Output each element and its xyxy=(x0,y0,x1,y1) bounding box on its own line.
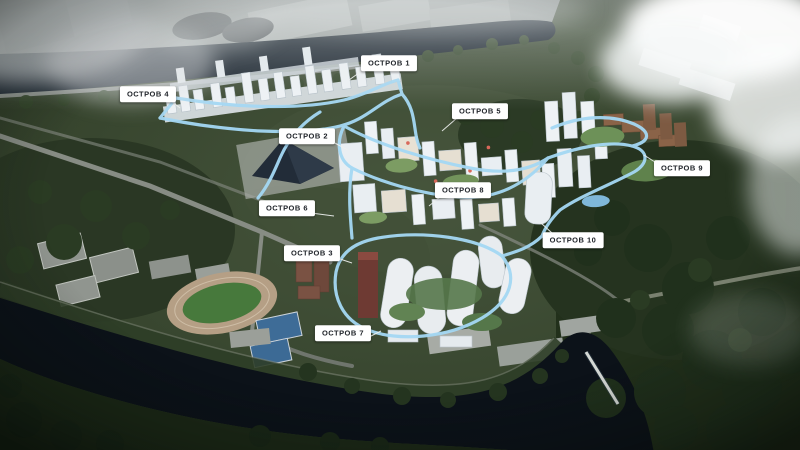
district-label-ostrov-10[interactable]: ОСТРОВ 10 xyxy=(543,232,604,248)
district-label-ostrov-9[interactable]: ОСТРОВ 9 xyxy=(654,160,710,176)
masterplan-scene: ОСТРОВ 1 ОСТРОВ 4 ОСТРОВ 2 ОСТРОВ 5 ОСТР… xyxy=(0,0,800,450)
district-label-ostrov-1[interactable]: ОСТРОВ 1 xyxy=(361,55,417,71)
district-label-ostrov-6[interactable]: ОСТРОВ 6 xyxy=(259,200,315,216)
district-label-ostrov-8[interactable]: ОСТРОВ 8 xyxy=(435,182,491,198)
district-label-ostrov-2[interactable]: ОСТРОВ 2 xyxy=(279,128,335,144)
district-label-ostrov-7[interactable]: ОСТРОВ 7 xyxy=(315,325,371,341)
district-label-ostrov-5[interactable]: ОСТРОВ 5 xyxy=(452,103,508,119)
district-labels: ОСТРОВ 1 ОСТРОВ 4 ОСТРОВ 2 ОСТРОВ 5 ОСТР… xyxy=(0,0,800,450)
district-label-ostrov-4[interactable]: ОСТРОВ 4 xyxy=(120,86,176,102)
district-label-ostrov-3[interactable]: ОСТРОВ 3 xyxy=(284,245,340,261)
